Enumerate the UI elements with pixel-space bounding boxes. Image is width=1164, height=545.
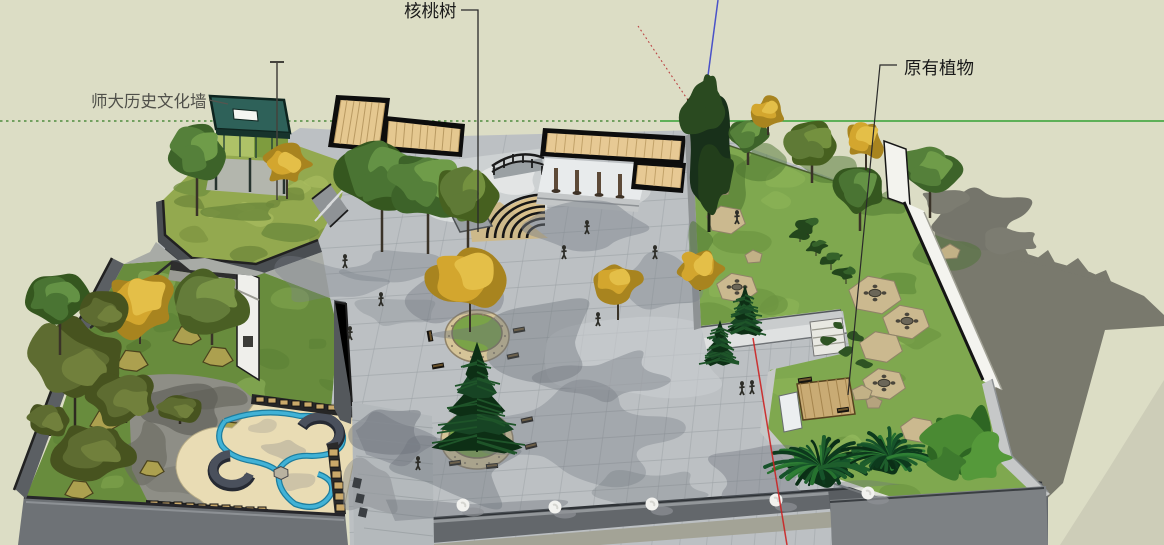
svg-text:核桃树: 核桃树 (404, 1, 457, 21)
svg-text:原有植物: 原有植物 (904, 58, 974, 78)
svg-text:师大历史文化墙: 师大历史文化墙 (91, 92, 207, 111)
